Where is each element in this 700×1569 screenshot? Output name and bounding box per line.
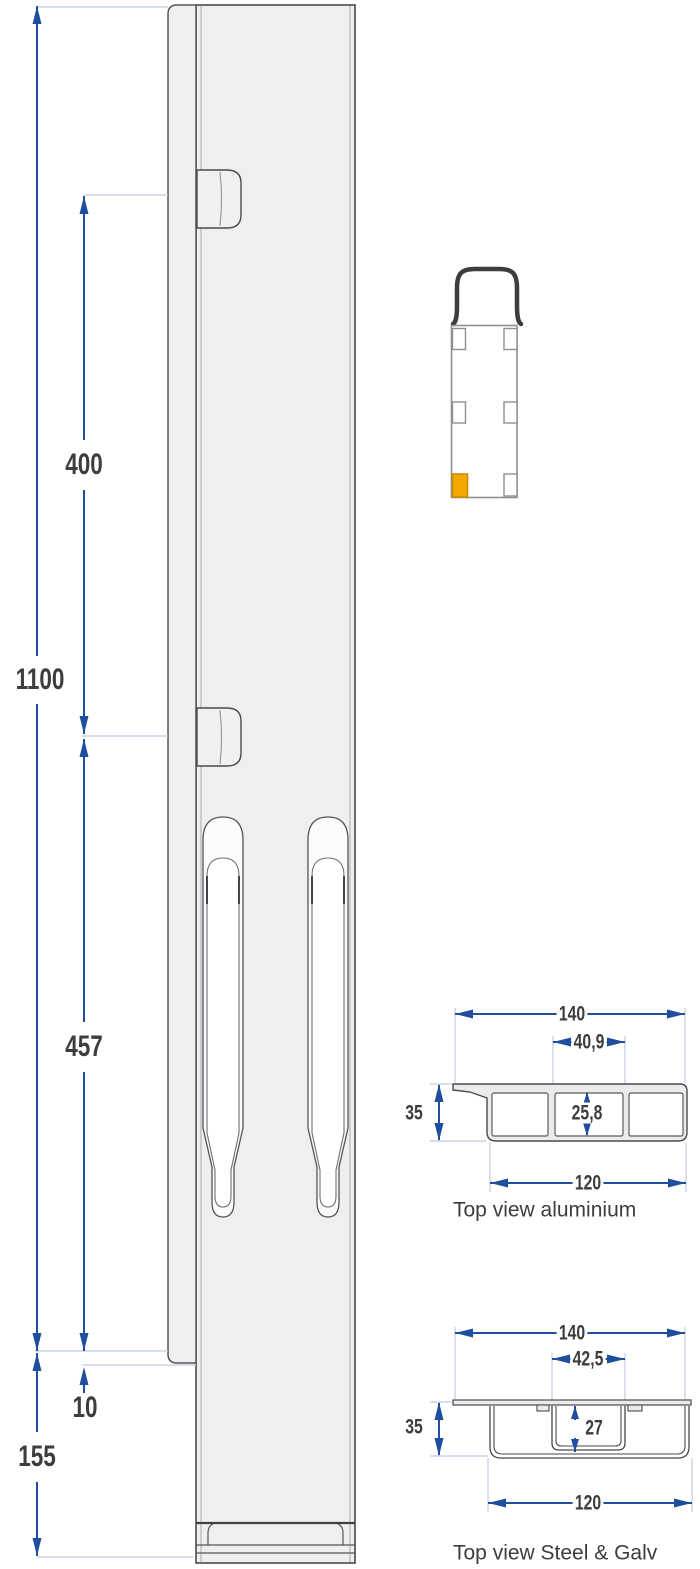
steel-section-caption: Top view Steel & Galv [453, 1543, 657, 1564]
post-side-view [168, 5, 355, 1563]
dim-label-457: 457 [63, 1032, 105, 1062]
alu-section-caption: Top view aluminium [453, 1200, 636, 1221]
steel-dim-120: 120 [573, 1493, 604, 1514]
alu-dim-140: 140 [557, 1004, 588, 1025]
steel-dim-42-5: 42,5 [570, 1349, 605, 1370]
dim-label-1100: 1100 [13, 665, 66, 695]
technical-drawing [0, 0, 700, 1569]
steel-section-profile [453, 1400, 691, 1458]
extension-lines [35, 7, 692, 1557]
post-body [196, 5, 355, 1563]
locator-icon [452, 269, 522, 498]
alu-dim-25-8: 25,8 [569, 1103, 604, 1124]
dimension-lines [37, 6, 692, 1556]
locator-channel-profile [453, 269, 521, 324]
technical-drawing-page: 1100 400 457 10 155 140 40,9 35 25,8 120… [0, 0, 700, 1569]
mounting-tab-bottom [197, 708, 241, 766]
dim-label-10: 10 [70, 1393, 100, 1423]
flange-plate [168, 5, 196, 1363]
alu-dim-120: 120 [573, 1173, 604, 1194]
steel-dim-27: 27 [583, 1418, 605, 1439]
steel-dim-35: 35 [403, 1417, 425, 1438]
mounting-tab-top [197, 170, 241, 228]
dim-label-400: 400 [63, 450, 105, 480]
steel-dim-140: 140 [557, 1323, 588, 1344]
locator-highlight-slot [453, 474, 468, 497]
alu-dim-40-9: 40,9 [571, 1032, 606, 1053]
dimension-arrowheads [33, 6, 693, 1556]
dim-label-155: 155 [16, 1442, 58, 1472]
alu-dim-35: 35 [403, 1103, 425, 1124]
